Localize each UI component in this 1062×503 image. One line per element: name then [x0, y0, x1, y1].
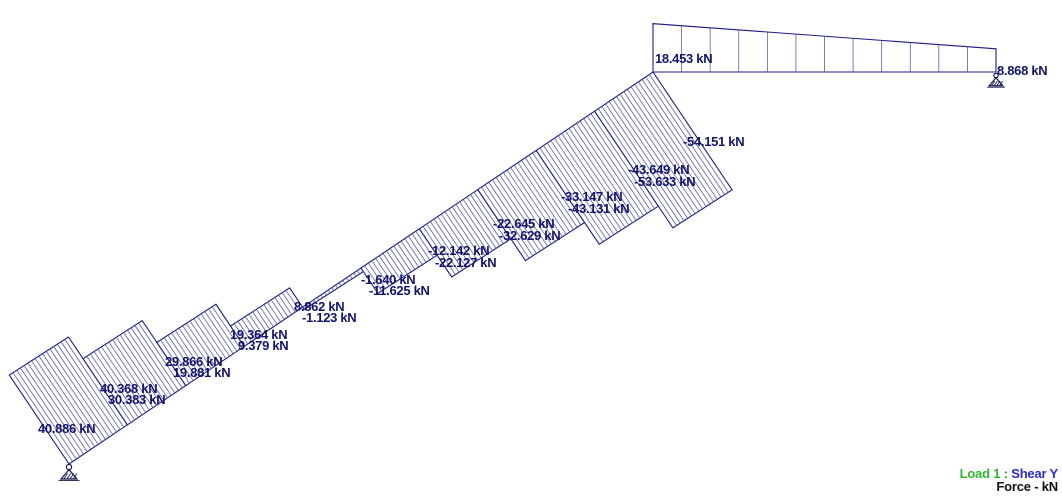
shear-value-label: -54.151 kN — [683, 134, 744, 149]
drawing-area: 40.886 kN40.368 kN30.383 kN29.866 kN19.8… — [0, 0, 1062, 503]
legend-load-case: Load 1 — [960, 466, 1001, 481]
shear-diagram-canvas[interactable]: 40.886 kN40.368 kN30.383 kN29.866 kN19.8… — [0, 0, 1062, 503]
result-legend: Load 1 : Shear Y Force - kN — [960, 467, 1058, 493]
shear-value-label: 18.453 kN — [655, 51, 712, 66]
shear-value-label: -11.625 kN — [369, 283, 430, 298]
shear-value-label: 8.868 kN — [997, 63, 1047, 78]
shear-value-label: -53.633 kN — [634, 174, 695, 189]
shear-value-label: 19.881 kN — [173, 365, 230, 380]
shear-value-label: -32.629 kN — [499, 228, 560, 243]
shear-value-label: 40.886 kN — [38, 421, 95, 436]
pinned-support-icon — [59, 464, 80, 480]
shear-value-label: 30.383 kN — [108, 392, 165, 407]
shear-value-label: -1.123 kN — [302, 310, 356, 325]
shear-value-label: -22.127 kN — [435, 255, 496, 270]
shear-value-label: 9.379 kN — [238, 338, 288, 353]
shear-value-label: -43.131 kN — [568, 201, 629, 216]
legend-unit: Force - kN — [960, 480, 1058, 493]
